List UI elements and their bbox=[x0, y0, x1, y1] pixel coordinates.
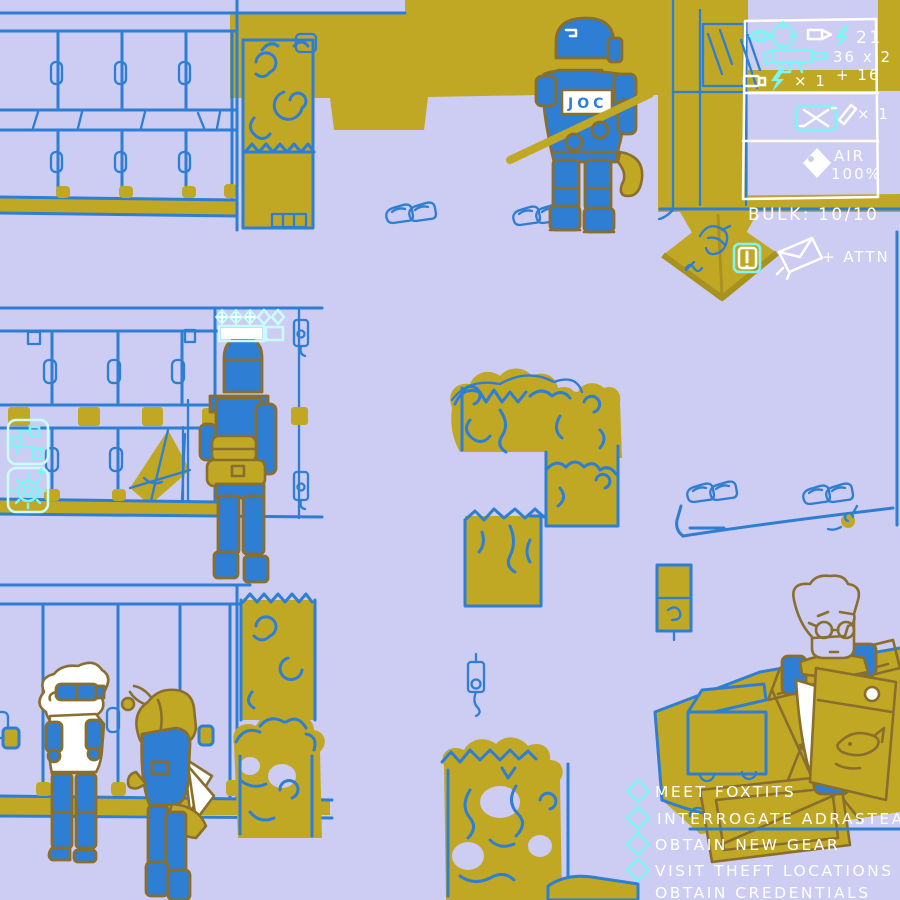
quest-row: INTERROGATE ADRASTEA bbox=[627, 807, 900, 829]
cop-helmet bbox=[556, 18, 614, 58]
planter-column-top bbox=[243, 34, 316, 228]
quest-label: OBTAIN NEW GEAR bbox=[655, 836, 840, 854]
quest-label: OBTAIN CREDENTIALS bbox=[655, 884, 871, 900]
shell-qty: × 1 bbox=[794, 72, 827, 90]
player-bag bbox=[207, 460, 265, 486]
item-qty: × 1 bbox=[857, 105, 890, 123]
ammo-count: 21 bbox=[856, 28, 883, 48]
bulk-label: BULK: bbox=[748, 205, 811, 225]
air-label: AIR bbox=[834, 147, 865, 165]
quest-label: MEET FOXTITS bbox=[655, 783, 796, 801]
quest-label: VISIT THEFT LOCATIONS 2/2 bbox=[655, 862, 900, 880]
charge-diamond-filled bbox=[216, 310, 256, 324]
air-value: 100% bbox=[831, 165, 882, 183]
bulk-value: 10/10 bbox=[818, 205, 880, 225]
quest-row: OBTAIN CREDENTIALS bbox=[655, 884, 871, 900]
cop-vest-sign-text: JOC bbox=[567, 96, 607, 112]
ammo-magazine: 36 x 2 bbox=[833, 48, 892, 66]
ammo-reserve: + 16 bbox=[836, 66, 880, 84]
bottom-center-planter bbox=[442, 737, 568, 900]
quest-row: VISIT THEFT LOCATIONS 2/2 bbox=[627, 859, 900, 881]
attn-label: + ATTN bbox=[822, 248, 890, 266]
player-head bbox=[224, 338, 262, 392]
planter-column-bottom bbox=[233, 594, 324, 838]
quest-row: OBTAIN NEW GEAR bbox=[627, 833, 840, 855]
shopkeeper-hand bbox=[865, 687, 879, 701]
health-bar-fill bbox=[221, 328, 262, 339]
counter-box bbox=[688, 684, 766, 781]
quest-label: INTERROGATE ADRASTEA bbox=[657, 810, 900, 828]
game-screen: JOC bbox=[0, 0, 900, 900]
held-board bbox=[810, 668, 896, 800]
